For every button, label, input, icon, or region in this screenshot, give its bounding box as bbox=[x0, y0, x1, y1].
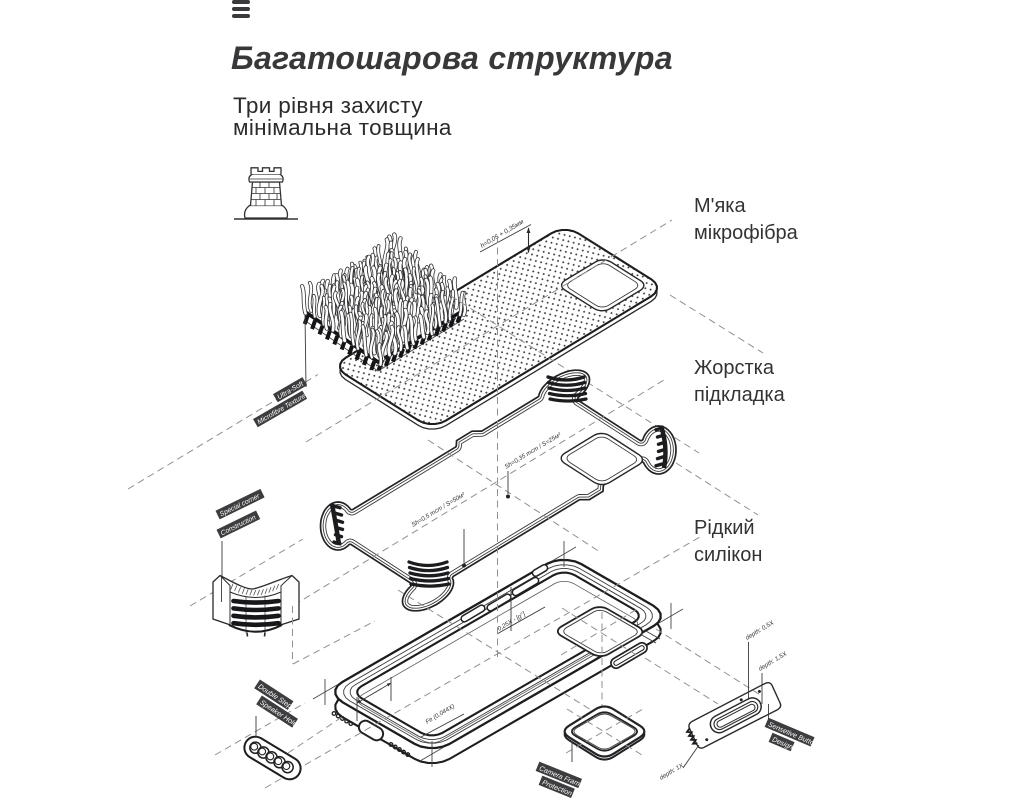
svg-text:h=0,05 + 0,35мм: h=0,05 + 0,35мм bbox=[479, 218, 525, 250]
svg-text:depth: 0,5X: depth: 0,5X bbox=[744, 619, 775, 642]
svg-text:depth: 1X: depth: 1X bbox=[658, 762, 685, 782]
svg-text:depth: 1,5X: depth: 1,5X bbox=[757, 650, 788, 673]
